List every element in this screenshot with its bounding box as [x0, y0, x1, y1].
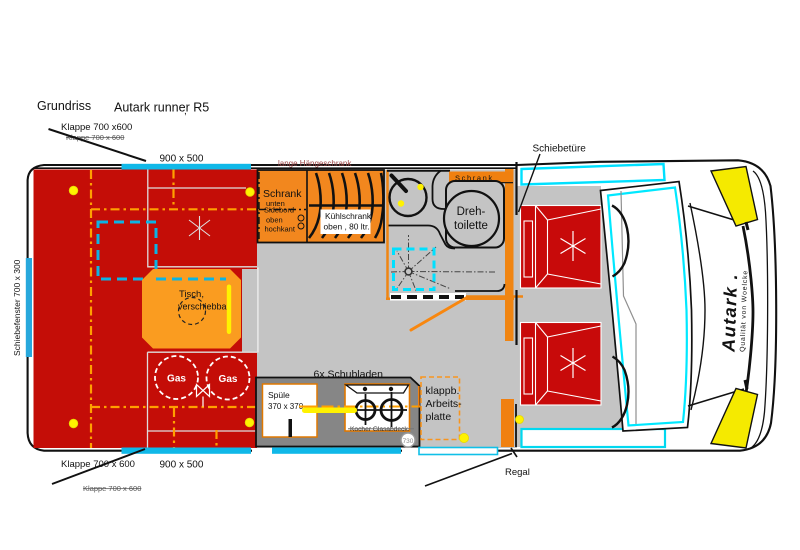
svg-text:Regal: Regal [505, 467, 530, 478]
svg-text:verschiebbar: verschiebbar [178, 302, 230, 312]
svg-text:Dreh-: Dreh- [457, 206, 486, 218]
svg-text:Arbeits-: Arbeits- [426, 398, 463, 410]
svg-text:hochkant: hochkant [265, 225, 296, 234]
svg-text:900 x 500: 900 x 500 [160, 154, 204, 165]
svg-text:Klappe 700 x 600: Klappe 700 x 600 [83, 484, 141, 493]
svg-text:Schiebefenster 700 x 300: Schiebefenster 700 x 300 [12, 259, 22, 356]
svg-text:Gas: Gas [219, 374, 238, 385]
svg-text:Klappe 700 x600: Klappe 700 x600 [61, 122, 132, 133]
svg-text:Grundriss: Grundriss [37, 99, 91, 113]
svg-text:klappb.: klappb. [426, 385, 460, 397]
svg-text:oben , 80 ltr.: oben , 80 ltr. [324, 222, 370, 232]
svg-text:Tisch,: Tisch, [179, 289, 204, 300]
svg-text:Autark .: Autark . [718, 272, 741, 353]
svg-text:oben: oben [266, 216, 283, 225]
svg-text:370 x 370: 370 x 370 [268, 402, 304, 411]
svg-text:Autark runner R5: Autark runner R5 [114, 101, 209, 115]
svg-text:,: , [184, 106, 187, 117]
svg-text:900 x 500: 900 x 500 [160, 460, 204, 471]
svg-text:Schiebetüre: Schiebetüre [533, 144, 587, 155]
svg-text:toilette: toilette [454, 220, 488, 232]
svg-text:platte: platte [426, 411, 452, 423]
svg-text:Sidebord: Sidebord [264, 206, 294, 215]
svg-text:lange Hängeschrank: lange Hängeschrank [278, 159, 352, 168]
svg-text:6x Schubladen: 6x Schubladen [314, 369, 384, 381]
svg-text:Spüle: Spüle [268, 390, 290, 400]
svg-text:Kocher Glasabdeck.: Kocher Glasabdeck. [350, 426, 410, 433]
svg-text:730: 730 [403, 438, 414, 445]
svg-text:Klappe 700 x 600: Klappe 700 x 600 [61, 459, 135, 470]
svg-text:Kühlschrank: Kühlschrank [325, 211, 372, 221]
svg-text:Gas: Gas [167, 374, 186, 385]
